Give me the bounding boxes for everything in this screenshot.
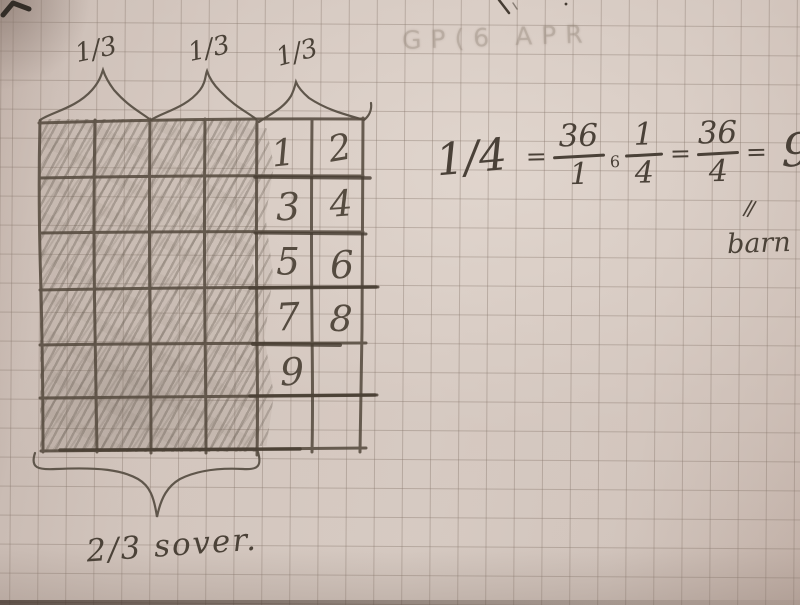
denominator: 4	[708, 156, 728, 186]
grid-cell-number: 7	[275, 297, 301, 336]
top-brace-2	[151, 71, 256, 120]
grid-cell-number: 8	[329, 302, 353, 339]
numerator: 36	[697, 117, 737, 149]
corner-pen-mark	[3, 3, 29, 15]
top-brace-3	[259, 82, 371, 122]
fraction-36-over-1: 36 1	[552, 120, 605, 190]
equation-lhs: 1/4	[434, 129, 509, 186]
grid-cell-number: 4	[328, 186, 353, 224]
darker-line-overlays	[60, 177, 376, 450]
equals-sign: =	[526, 141, 547, 170]
numerator: 1	[633, 119, 653, 150]
grid-line	[39, 119, 364, 123]
denominator: 1	[569, 159, 589, 189]
fraction-bar	[625, 152, 663, 157]
fraction-bar	[697, 150, 739, 155]
grid-line	[205, 119, 207, 453]
denominator: 4	[634, 158, 654, 188]
result-annotation: barn	[727, 229, 792, 258]
grid-cell-number: 6	[329, 245, 355, 284]
grid-cell-number: 3	[275, 188, 300, 227]
grid-line	[150, 119, 152, 453]
equation-result: 9	[781, 122, 800, 178]
fraction-36-over-4: 36 4	[696, 117, 739, 187]
fraction-1-over-4: 1 4	[624, 119, 663, 189]
grid-line	[39, 121, 43, 452]
grid-cell-number: 9	[279, 353, 304, 392]
photo-bottom-edge	[0, 600, 800, 605]
grid-line	[360, 118, 363, 452]
equals-sign: =	[746, 137, 767, 166]
grid-cell-number: 5	[276, 244, 300, 281]
top-edge-pen-marks	[499, 0, 567, 13]
photo-of-handwritten-math: GP(6 APR	[0, 0, 800, 605]
numerator: 36	[558, 120, 598, 152]
handwritten-equation: 1/4 = 36 1 6 1 4 = 36 4 = 9	[435, 102, 800, 206]
bottom-brace	[34, 452, 260, 517]
grid-cell-number: 1	[269, 133, 296, 172]
equals-sign: =	[670, 138, 691, 167]
multiplication-dot: 6	[610, 152, 621, 171]
hand-drawn-strokes	[0, 0, 800, 605]
grid-line	[94, 120, 97, 452]
top-braces	[40, 70, 371, 122]
top-brace-1	[40, 70, 148, 120]
